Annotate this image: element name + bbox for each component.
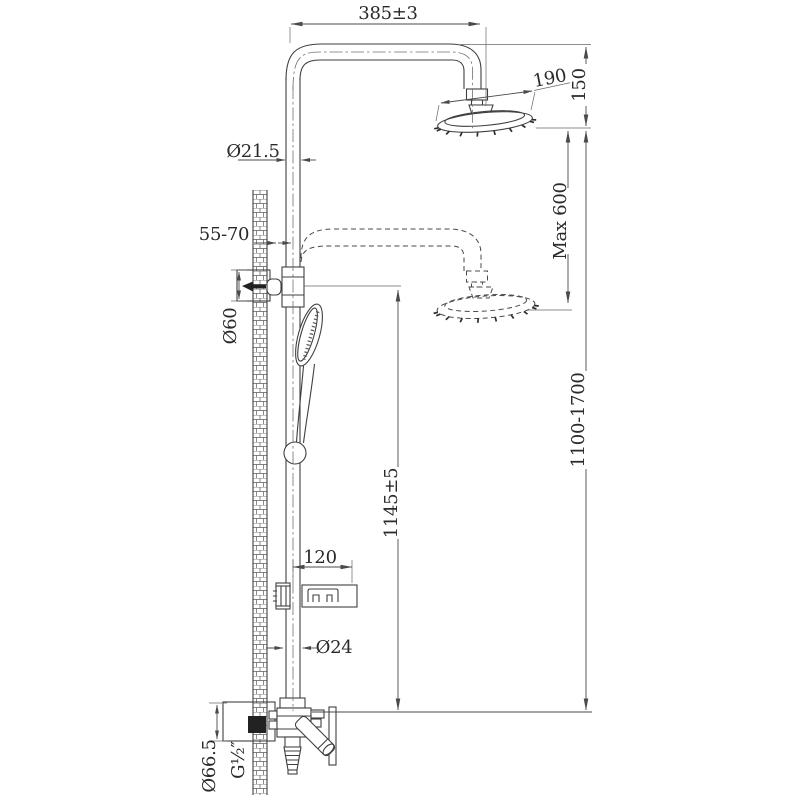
riser-nut — [280, 698, 305, 708]
slider-ring — [284, 442, 306, 464]
top-shower-head — [433, 107, 537, 140]
phantom-shower-arm — [301, 229, 493, 298]
centerlines — [293, 52, 473, 711]
wall-feedthrough — [248, 716, 266, 733]
hose-connector — [284, 747, 301, 774]
dim-head-height-label: 150 — [569, 68, 590, 101]
wall-section — [253, 190, 267, 795]
drawing-canvas: 385±3 190 150 Ø21.5 Max 600 55-70 Ø60 11… — [0, 0, 800, 800]
dim-soap-dish-width-label: 120 — [303, 547, 336, 568]
dim-bracket-height-label: 1145±5 — [381, 468, 402, 539]
dim-riser-diameter-label: Ø21.5 — [226, 141, 279, 162]
soap-dish — [273, 583, 357, 609]
dim-arm-width-label: 385±3 — [358, 3, 417, 24]
hand-shower-head — [290, 301, 328, 368]
dim-max-extension-label: Max 600 — [550, 182, 571, 259]
dim-escutcheon-diameter-label: Ø66.5 — [199, 739, 220, 792]
dim-inlet-thread-label: G½″ — [228, 741, 249, 779]
dim-bracket-diameter-label: Ø60 — [220, 308, 241, 345]
technical-drawing: 385±3 190 150 Ø21.5 Max 600 55-70 Ø60 11… — [0, 0, 800, 800]
mounting-plate — [329, 707, 336, 765]
dim-wall-offset-label: 55-70 — [199, 224, 249, 245]
dim-overall-height-label: 1100-1700 — [568, 373, 589, 468]
phantom-shower-head — [433, 291, 540, 325]
dim-head-diameter-label: 190 — [531, 65, 568, 92]
hand-shower — [284, 301, 328, 464]
dim-lower-tube-diameter-label: Ø24 — [316, 637, 353, 658]
